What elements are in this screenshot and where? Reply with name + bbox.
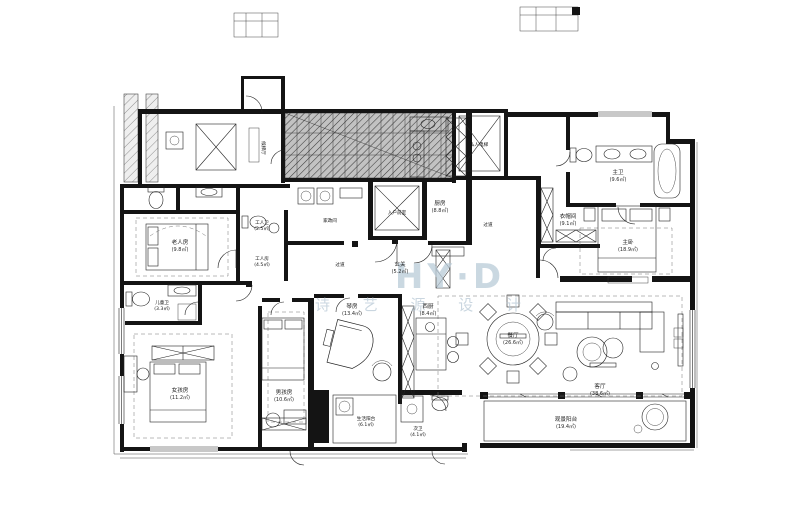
watermark-logo: HY·D [395, 257, 505, 297]
floor-plan: HY·D 诗 艺 源 设 计 候梯厅 私人电梯 入户前室 家政间 工人卫 (2.… [0, 0, 800, 527]
boy-bed [262, 318, 306, 427]
label-elder-room-area: (9.8㎡) [172, 246, 189, 253]
label-living: 客厅 [594, 382, 606, 390]
top-detail-marks [234, 7, 580, 37]
basin-icon [269, 223, 279, 233]
entry-foyer-shaft [375, 186, 419, 230]
balcony-sliding-doors [488, 394, 684, 397]
label-private-elevator: 私人电梯 [470, 141, 489, 148]
label-master-bed-area: (18.9㎡) [618, 246, 638, 253]
label-kids-bath-area: (3.3㎡) [154, 305, 170, 312]
label-piano-room: 琴房 [346, 302, 358, 310]
washer-icon [336, 398, 353, 415]
floor-lamp-icon [652, 363, 659, 370]
window-left-1 [118, 308, 125, 354]
basin-icon [174, 287, 190, 294]
stool-icon [448, 337, 459, 348]
label-master-bed: 主卧 [622, 238, 634, 246]
label-kitchen-area: (8.8㎡) [432, 207, 449, 214]
label-west-kitchen-area: (8.4㎡) [420, 310, 437, 317]
label-service-balcony: 生活阳台 [357, 415, 376, 422]
west-kitchen-island [416, 318, 459, 370]
label-elevator-hall: 候梯厅 [260, 141, 267, 155]
window-right-1 [689, 310, 696, 388]
label-west-kitchen: 西厨 [422, 303, 434, 310]
label-maid-bath: 工人卫 [255, 220, 269, 226]
armchair-icon [373, 363, 391, 381]
label-view-balcony-area: (19.4㎡) [556, 423, 576, 430]
label-elder-room: 老人房 [172, 238, 189, 246]
label-boy-room: 男孩房 [276, 388, 293, 396]
washer-icon [298, 188, 314, 204]
window-top-master-bath [598, 111, 652, 117]
basin-icon [201, 189, 217, 196]
label-laundry: 家政间 [323, 217, 337, 224]
stool-icon [448, 352, 459, 363]
desk-chair-icon [137, 368, 149, 380]
jacuzzi-icon [642, 404, 668, 430]
lobby-elevator [166, 124, 259, 170]
label-hall: 过道 [335, 261, 345, 268]
label-dining: 餐厅 [507, 331, 519, 339]
public-corridor-hatch [285, 113, 453, 178]
girl-wardrobe [152, 346, 214, 360]
label-kitchen: 厨房 [434, 199, 446, 207]
girl-bed [124, 356, 206, 422]
dryer-icon [317, 188, 333, 204]
dashed-guides [134, 218, 682, 438]
guest-bath-fixtures [401, 396, 448, 422]
dining-side-cabinet [402, 306, 414, 398]
basin-icon [604, 149, 620, 159]
label-girl-room-area: (11.2㎡) [170, 394, 190, 401]
label-master-bath: 主卫 [612, 168, 624, 176]
toilet-icon [133, 292, 150, 306]
window-bottom-1 [150, 446, 218, 452]
basin-icon [630, 149, 646, 159]
label-closet-area: (9.1㎡) [560, 220, 577, 227]
view-balcony [484, 401, 686, 441]
shower-icon [401, 396, 423, 422]
label-foyer-area: (5.2㎡) [392, 268, 409, 275]
label-kids-bath: 儿童卫 [155, 299, 169, 306]
master-bath-fixtures [570, 144, 680, 198]
label-maid-bath-area: (2.5㎡) [254, 225, 270, 232]
label-piano-room-area: (13.4㎡) [342, 310, 362, 317]
label-service-balcony-area: (6.1㎡) [358, 421, 374, 428]
girl-desk [124, 356, 137, 392]
living-furniture [536, 302, 683, 381]
label-guest-bath-area: (4.1㎡) [410, 431, 426, 438]
label-guest-bath: 次卫 [413, 425, 423, 432]
label-hall2: 过道 [483, 221, 493, 228]
coffee-table-icon [577, 337, 607, 367]
service-bath-fixtures [148, 186, 222, 209]
grand-piano [319, 318, 392, 381]
pouf-icon [563, 367, 577, 381]
label-living-area: (38.6㎡) [590, 390, 610, 397]
island-sink-icon [426, 323, 435, 332]
label-master-bath-area: (9.6㎡) [610, 176, 627, 183]
toilet-icon [149, 192, 163, 209]
label-closet: 衣帽间 [560, 212, 577, 220]
toilet-icon [576, 149, 592, 162]
label-maid-room: 工人房 [255, 255, 269, 262]
label-girl-room: 女孩房 [172, 386, 189, 394]
label-foyer: 玄关 [394, 260, 406, 268]
armchair-icon [537, 314, 553, 330]
label-maid-room-area: (4.5㎡) [254, 261, 270, 268]
label-dining-area: (26.6㎡) [503, 339, 523, 346]
label-view-balcony: 观景阳台 [555, 415, 578, 423]
label-entry-foyer: 入户前室 [388, 209, 407, 216]
label-boy-room-area: (10.6㎡) [274, 396, 294, 403]
laundry-room [298, 188, 362, 204]
